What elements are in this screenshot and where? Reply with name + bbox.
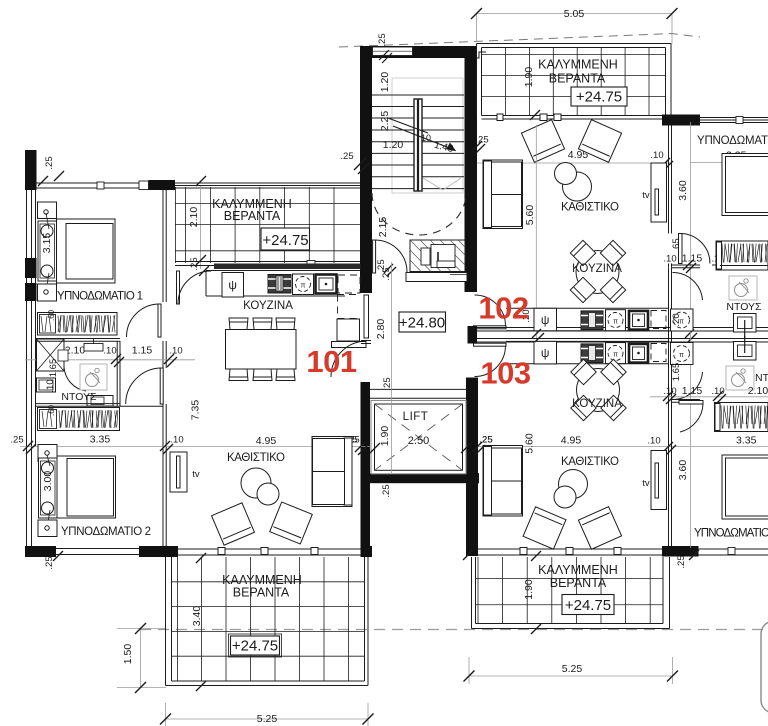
- svg-text:101: 101: [306, 344, 356, 379]
- svg-text:ΥΠΝΟΔΩΜΑΤΙΟ: ΥΠΝΟΔΩΜΑΤΙΟ: [694, 528, 768, 540]
- svg-text:ψ: ψ: [541, 313, 550, 327]
- svg-text:ΒΕΡΑΝΤΑ: ΒΕΡΑΝΤΑ: [549, 72, 606, 86]
- svg-text:5.60: 5.60: [524, 433, 536, 454]
- svg-text:ΥΠΝΟΔΩΜΑΤΙΟ 2: ΥΠΝΟΔΩΜΑΤΙΟ 2: [61, 526, 151, 538]
- svg-text:ΚΑΘΙΣΤΙΚΟ: ΚΑΘΙΣΤΙΚΟ: [227, 452, 285, 464]
- svg-text:LIFT: LIFT: [403, 411, 429, 423]
- svg-text:102: 102: [478, 291, 528, 326]
- svg-text:2.50: 2.50: [408, 435, 429, 447]
- svg-text:1.15: 1.15: [682, 385, 703, 397]
- svg-text:+24.75: +24.75: [576, 89, 622, 106]
- svg-text:π: π: [613, 352, 618, 359]
- svg-text:ΚΟΥΖΙΝΑ: ΚΟΥΖΙΝΑ: [243, 300, 293, 312]
- svg-text:7.35: 7.35: [190, 400, 202, 421]
- svg-text:.10: .10: [650, 150, 663, 161]
- svg-text:ψ: ψ: [541, 346, 550, 360]
- svg-text:3.60: 3.60: [677, 460, 689, 481]
- svg-text:ΝΤΟΥΣ: ΝΤΟΥΣ: [726, 301, 762, 313]
- svg-text:+24.75: +24.75: [232, 638, 278, 655]
- svg-text:.65: .65: [671, 238, 682, 251]
- svg-text:2.15: 2.15: [377, 217, 389, 238]
- svg-text:5.25: 5.25: [562, 663, 583, 675]
- svg-text:3.00: 3.00: [42, 471, 54, 492]
- svg-text:2.80: 2.80: [375, 319, 387, 340]
- svg-text:1.90: 1.90: [379, 426, 391, 447]
- svg-text:1.90: 1.90: [523, 67, 535, 88]
- svg-text:.25: .25: [44, 156, 55, 169]
- svg-text:+24.75: +24.75: [262, 232, 308, 249]
- svg-text:ΒΕΡΑΝΤΑ: ΒΕΡΑΝΤΑ: [224, 209, 281, 223]
- svg-text:1.65: 1.65: [48, 359, 59, 378]
- svg-text:.25: .25: [475, 135, 488, 146]
- svg-text:tv: tv: [642, 478, 650, 489]
- svg-text:.25: .25: [189, 257, 200, 270]
- svg-text:.25: .25: [376, 259, 387, 272]
- svg-text:1.90: 1.90: [523, 579, 535, 600]
- svg-text:tv: tv: [192, 469, 200, 480]
- svg-text:5.60: 5.60: [524, 205, 536, 226]
- svg-text:ΚΑΛΥΜΜΕΝΗ: ΚΑΛΥΜΜΕΝΗ: [538, 563, 618, 577]
- svg-text:.60: .60: [47, 309, 56, 321]
- svg-text:ΥΠΝΟΔΩΜΑΤΙΟ 1: ΥΠΝΟΔΩΜΑΤΙΟ 1: [57, 291, 143, 303]
- svg-text:3.60: 3.60: [677, 180, 689, 201]
- svg-text:ΒΕΡΑΝΤΑ: ΒΕΡΑΝΤΑ: [233, 586, 290, 600]
- svg-text:.10: .10: [169, 346, 182, 357]
- svg-text:10: 10: [421, 133, 431, 143]
- svg-text:tv: tv: [642, 190, 650, 201]
- svg-text:.25: .25: [479, 435, 492, 446]
- svg-text:.10: .10: [647, 436, 660, 447]
- svg-text:1.15: 1.15: [132, 345, 153, 357]
- svg-text:1.50: 1.50: [122, 644, 134, 665]
- svg-text:ΥΠΝΟΔΩΜΑΤ: ΥΠΝΟΔΩΜΑΤ: [697, 135, 768, 147]
- svg-text:5.25: 5.25: [257, 713, 278, 725]
- svg-text:.25: .25: [381, 484, 392, 497]
- svg-text:ΚΑΛΥΜΜΕΝΗ: ΚΑΛΥΜΜΕΝΗ: [538, 58, 618, 72]
- svg-text:.10: .10: [663, 254, 676, 265]
- svg-text:ψ: ψ: [228, 278, 237, 292]
- svg-text:3.35: 3.35: [90, 434, 111, 446]
- svg-text:3.40: 3.40: [191, 606, 203, 627]
- svg-text:ΒΕΡΑΝΤΑ: ΒΕΡΑΝΤΑ: [550, 576, 607, 590]
- svg-text:ΝΤΟΥΣ: ΝΤΟΥΣ: [61, 391, 97, 403]
- svg-text:4.95: 4.95: [256, 435, 277, 447]
- svg-text:.25: .25: [676, 555, 687, 568]
- svg-text:3.35: 3.35: [736, 435, 757, 447]
- svg-text:.25: .25: [340, 151, 353, 162]
- svg-text:1.20: 1.20: [379, 72, 391, 93]
- svg-text:.25: .25: [10, 435, 23, 446]
- svg-text:2.10: 2.10: [748, 385, 768, 397]
- svg-text:1.65: 1.65: [671, 363, 682, 382]
- svg-text:4.95: 4.95: [561, 435, 582, 447]
- svg-text:.25: .25: [44, 556, 55, 569]
- svg-text:ΚΟΥΖΙΝΑ: ΚΟΥΖΙΝΑ: [572, 263, 622, 275]
- svg-text:103: 103: [480, 356, 530, 391]
- svg-text:.10: .10: [103, 346, 116, 357]
- svg-text:1.15: 1.15: [682, 253, 703, 265]
- svg-text:ΚΑΘΙΣΤΙΚΟ: ΚΑΘΙΣΤΙΚΟ: [561, 456, 619, 468]
- svg-text:.10: .10: [45, 379, 56, 392]
- svg-text:π: π: [301, 283, 306, 290]
- svg-text:.60: .60: [47, 404, 56, 416]
- svg-text:ΚΟΥΖΙΝΑ: ΚΟΥΖΙΝΑ: [572, 398, 622, 410]
- svg-text:2.10: 2.10: [188, 207, 200, 228]
- svg-text:5.05: 5.05: [564, 8, 585, 20]
- svg-text:3.15: 3.15: [41, 233, 53, 254]
- svg-text:π: π: [679, 352, 684, 359]
- svg-text:+24.75: +24.75: [565, 597, 611, 614]
- svg-text:+24.80: +24.80: [399, 315, 445, 332]
- svg-text:ΚΑΘΙΣΤΙΚΟ: ΚΑΘΙΣΤΙΚΟ: [561, 202, 619, 214]
- svg-text:π: π: [613, 319, 618, 326]
- svg-text:1.20: 1.20: [383, 139, 404, 151]
- svg-text:2.25: 2.25: [379, 111, 391, 132]
- svg-text:.20: .20: [671, 313, 682, 326]
- svg-text:.25: .25: [377, 33, 388, 46]
- svg-text:ΝΤ: ΝΤ: [755, 372, 768, 384]
